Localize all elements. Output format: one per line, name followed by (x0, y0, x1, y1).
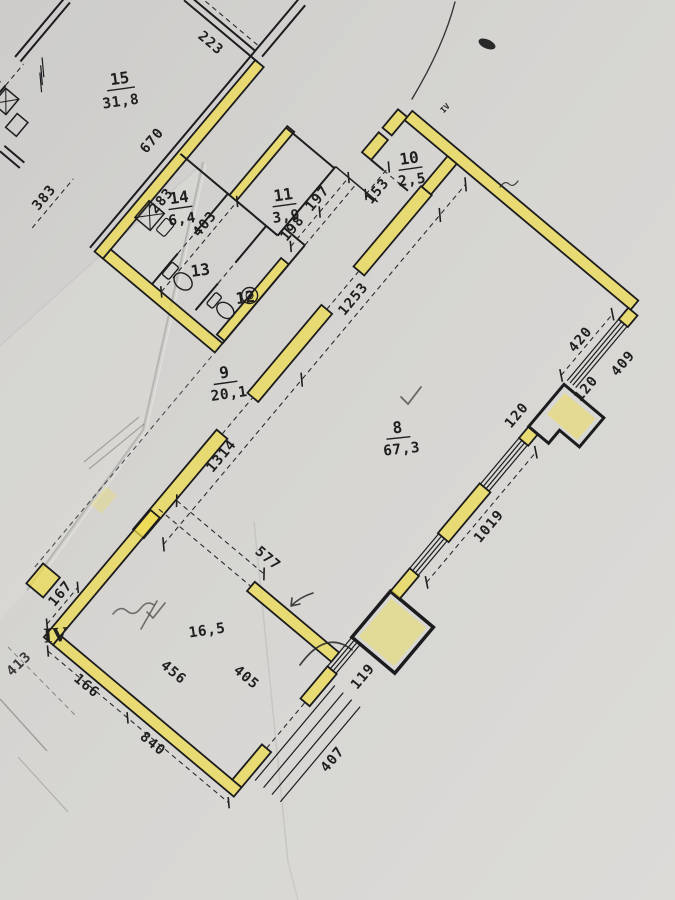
room-11-number: 11 (272, 184, 294, 205)
room-14-number: 14 (168, 187, 190, 208)
room-13-number: 13 (189, 259, 211, 280)
room-12-number: 12 (234, 287, 256, 308)
room-15-number: 15 (109, 68, 131, 89)
room-label-12: 12 (234, 287, 256, 308)
room-label-13: 13 (189, 259, 211, 280)
room-10-number: 10 (398, 147, 420, 168)
room-8-number: 8 (392, 418, 404, 438)
entrance-label: IV (43, 624, 69, 648)
entrance-roman-numeral: IV (43, 624, 69, 648)
floor-plan-photo: 413 (0, 0, 675, 900)
floor-plan-canvas: 413 (0, 0, 675, 900)
